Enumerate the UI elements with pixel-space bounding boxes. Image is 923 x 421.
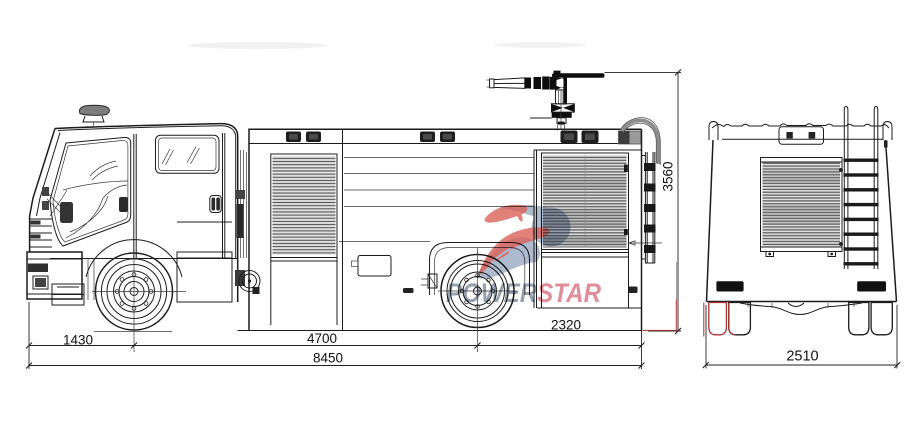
svg-text:1430: 1430 — [63, 333, 93, 348]
svg-text:3560: 3560 — [661, 161, 676, 191]
svg-text:8450: 8450 — [313, 351, 343, 366]
svg-text:4700: 4700 — [307, 331, 337, 346]
svg-text:2320: 2320 — [551, 318, 581, 333]
svg-text:2510: 2510 — [786, 349, 818, 365]
svg-text:POWERSTAR: POWERSTAR — [446, 278, 601, 308]
